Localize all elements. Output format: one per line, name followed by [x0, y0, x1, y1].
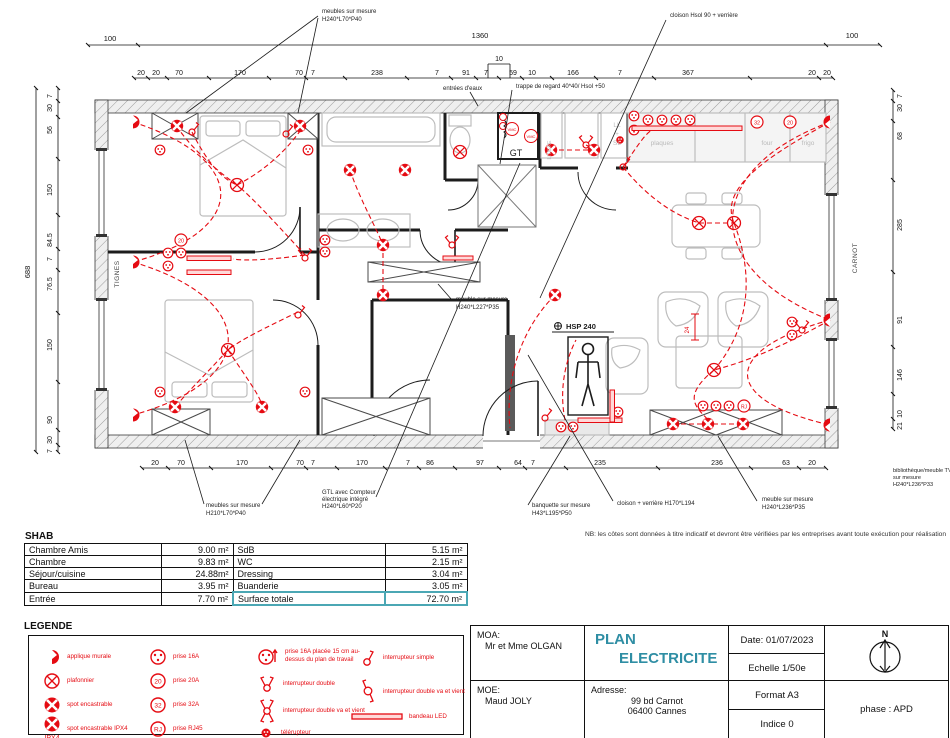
outlet-icon: [155, 387, 165, 397]
format-value: Format A3: [729, 681, 825, 710]
svg-text:four: four: [761, 140, 773, 147]
legend-item: bandeau LED: [351, 712, 447, 722]
outlet-icon: [303, 145, 313, 155]
svg-text:LITIERE: LITIERE: [547, 140, 553, 160]
outlet-icon: [698, 401, 708, 411]
svg-text:30: 30: [47, 436, 54, 444]
svg-text:150: 150: [47, 339, 54, 351]
led-strip-icon: [351, 712, 403, 722]
door-arcs: [255, 172, 616, 436]
spot-icon: [294, 120, 306, 132]
moa-cell: MOA: Mr et Mme OLGAN: [470, 625, 586, 682]
plafonnier-icon: [708, 364, 721, 377]
svg-text:238: 238: [371, 70, 383, 77]
switch-icon: [542, 409, 552, 422]
format-cell: Format A3: [728, 680, 826, 711]
switch-double-vv-icon: [257, 698, 277, 724]
outlet-20a-icon: 20: [149, 672, 167, 690]
svg-text:100: 100: [104, 34, 117, 43]
telerupteur-icon: [257, 726, 275, 738]
spot-icon: [377, 289, 389, 301]
applique-icon: [824, 314, 831, 327]
svg-text:7: 7: [311, 460, 315, 467]
date-cell: Date: 01/07/2023: [728, 625, 826, 655]
svg-text:10: 10: [495, 56, 503, 63]
outlet-rj45-icon: RJ: [738, 400, 750, 412]
legend-item: spot encastrable: [43, 696, 112, 714]
vmc-icon: VMC: [506, 123, 519, 136]
outlet-icon: [176, 248, 186, 258]
legend-box: applique murale plafonnier spot encastra…: [28, 635, 464, 735]
shab-table: Chambre Amis9.00 m² SdB5.15 m² Chambre9.…: [24, 543, 468, 606]
svg-text:trappe de regard 40*40/ Hsol +: trappe de regard 40*40/ Hsol +50: [516, 84, 606, 90]
svg-text:7: 7: [406, 460, 410, 467]
svg-text:91: 91: [897, 316, 904, 324]
switch-simple-icon: [359, 648, 377, 668]
svg-text:H210*L70*P40: H210*L70*P40: [206, 511, 246, 517]
gtl-label: GT: [510, 148, 523, 158]
north-compass: N: [825, 626, 946, 678]
svg-text:H43*L195*P50: H43*L195*P50: [532, 511, 572, 517]
spot-icon: [702, 418, 714, 430]
svg-text:7: 7: [47, 257, 54, 261]
svg-text:7: 7: [47, 94, 54, 98]
svg-text:VMC: VMC: [508, 127, 517, 132]
svg-text:20: 20: [152, 70, 160, 77]
spot-icon: [169, 401, 181, 413]
hsp-marker: HSP 240: [552, 322, 614, 332]
svg-text:20: 20: [808, 70, 816, 77]
outlet-icon: [685, 115, 695, 125]
spot-icon: [256, 401, 268, 413]
title-block: MOA: Mr et Mme OLGAN MOE: Maud JOLY PLAN…: [470, 625, 947, 735]
spot-icon: [43, 696, 61, 714]
outlet-icon: [155, 145, 165, 155]
svg-text:146: 146: [897, 369, 904, 381]
outlet-20A-icon: 20: [175, 234, 187, 246]
address-line2: 06400 Cannes: [585, 706, 729, 716]
svg-text:HSP 240: HSP 240: [566, 322, 596, 331]
svg-text:68: 68: [897, 132, 904, 140]
phase-value: phase : APD: [825, 681, 948, 738]
svg-text:bibliothèque/meuble TV: bibliothèque/meuble TV: [893, 468, 950, 474]
svg-text:H240*L70*P40: H240*L70*P40: [322, 17, 362, 23]
svg-text:150: 150: [47, 184, 54, 196]
svg-text:7: 7: [897, 94, 904, 98]
svg-text:70: 70: [296, 460, 304, 467]
vmc-icon: VMC: [525, 130, 538, 143]
applique-icon: [133, 409, 140, 422]
outlet-rj45-icon: RJ: [149, 720, 167, 738]
svg-text:H240*L236*P35: H240*L236*P35: [762, 505, 806, 511]
dimension-labels: 100 1360 100 20 20 70 170 70 7 238 7 91 …: [23, 31, 904, 467]
outlet-icon: [556, 422, 566, 432]
outlet-icon: [300, 387, 310, 397]
legend-item: applique murale: [43, 648, 111, 666]
indice-cell: Indice 0: [728, 709, 826, 738]
applique-icon: [133, 116, 140, 129]
svg-text:20: 20: [787, 121, 793, 127]
moe-label: MOE:: [477, 685, 585, 695]
switch-double-vv-icon: [359, 678, 377, 706]
svg-text:285: 285: [897, 219, 904, 231]
svg-text:N: N: [882, 629, 889, 639]
outlet-20A-icon: 20: [784, 116, 796, 128]
svg-text:7: 7: [531, 460, 535, 467]
table-row: Bureau3.95 m² Buanderie3.05 m²: [25, 580, 468, 593]
person-figure: [576, 344, 600, 407]
legend-item: plafonnier: [43, 672, 94, 690]
spot-icon: [399, 164, 411, 176]
svg-text:10: 10: [897, 410, 904, 418]
shab-title: SHAB: [25, 531, 468, 542]
plafonnier-icon: [231, 179, 244, 192]
spot-icon: [377, 239, 389, 251]
svg-text:7: 7: [311, 70, 315, 77]
table-row: Chambre Amis9.00 m² SdB5.15 m²: [25, 544, 468, 556]
svg-text:63: 63: [782, 460, 790, 467]
outlet-16a-icon: [149, 648, 167, 666]
outlet-icon: [320, 247, 330, 257]
svg-text:76.5: 76.5: [47, 277, 54, 291]
svg-text:21: 21: [897, 422, 904, 430]
svg-text:20: 20: [151, 460, 159, 467]
moe-value: Maud JOLY: [485, 696, 585, 706]
outlet-32A-icon: 32: [751, 116, 763, 128]
duct-icon: [500, 114, 507, 121]
legend-item: interrupteur simple: [359, 648, 469, 668]
svg-text:166: 166: [567, 70, 579, 77]
svg-text:20: 20: [137, 70, 145, 77]
scale-value: Echelle 1/50e: [729, 654, 825, 683]
street-right-label: CARNOT: [852, 243, 859, 273]
svg-text:banquette sur mesure: banquette sur mesure: [532, 503, 591, 509]
spot-icon: [737, 418, 749, 430]
legend-item: prise 16A placée 15 cm au-dessus du plan…: [257, 646, 371, 666]
table-row-total: Entrée7.70 m² Surface totale72.70 m²: [25, 592, 468, 605]
svg-text:10: 10: [528, 70, 536, 77]
outlet-icon: [671, 115, 681, 125]
svg-text:236: 236: [711, 460, 723, 467]
svg-text:RJ: RJ: [741, 405, 748, 411]
date-value: Date: 01/07/2023: [729, 626, 825, 654]
svg-text:sur mesure: sur mesure: [893, 475, 921, 481]
svg-text:H240*L60*P20: H240*L60*P20: [322, 504, 362, 510]
legend-item: télérupteur: [257, 726, 311, 738]
legend-item: IPX4 spot encastrable IPX4: [43, 716, 128, 738]
drawing-title-cell: PLAN ELECTRICITE: [584, 625, 730, 682]
plafonnier-icon: [728, 217, 741, 230]
svg-text:électrique intégré: électrique intégré: [322, 497, 369, 503]
svg-text:688: 688: [23, 266, 32, 279]
svg-text:84.5: 84.5: [47, 233, 54, 247]
legend-item: RJ prise RJ45: [149, 720, 203, 738]
svg-text:86: 86: [426, 460, 434, 467]
outlet-icon: [787, 330, 797, 340]
address-line1: 99 bd Carnot: [585, 696, 729, 706]
applique-icon: [824, 419, 831, 432]
svg-text:32: 32: [754, 121, 760, 127]
legend-item: 32 prise 32A: [149, 696, 199, 714]
svg-text:30: 30: [47, 104, 54, 112]
spot-icon: [344, 164, 356, 176]
svg-text:cloison + verrière H170*L194: cloison + verrière H170*L194: [617, 501, 695, 507]
svg-text:7: 7: [435, 70, 439, 77]
svg-text:20: 20: [178, 239, 184, 245]
drawing-title: PLAN ELECTRICITE: [595, 631, 729, 669]
svg-text:91: 91: [462, 70, 470, 77]
svg-text:70: 70: [295, 70, 303, 77]
legend-item: interrupteur double: [257, 674, 369, 694]
svg-text:59: 59: [509, 70, 517, 77]
north-cell: N: [824, 625, 949, 682]
svg-text:meuble sur mesure: meuble sur mesure: [456, 297, 508, 303]
svg-text:meubles sur mesure: meubles sur mesure: [206, 503, 261, 509]
switch-double-icon: [446, 236, 459, 249]
outlet-icon: [657, 115, 667, 125]
red-dim-24-label: 24: [685, 326, 691, 333]
svg-text:20: 20: [823, 70, 831, 77]
svg-text:SL: SL: [613, 140, 621, 147]
svg-text:entrées d'eaux: entrées d'eaux: [443, 86, 482, 92]
outlet-worktop-icon: [257, 646, 279, 666]
floor-plan-drawing: 100 1360 100 20 20 70 170 70 7 238 7 91 …: [0, 0, 950, 530]
svg-text:170: 170: [356, 460, 368, 467]
svg-text:20: 20: [154, 679, 162, 686]
outlet-icon: [629, 111, 639, 121]
electrical-plan-sheet: { "accent": {"red": "#e50b12", "teal": "…: [0, 0, 950, 738]
svg-text:7: 7: [484, 70, 488, 77]
table-row: Séjour/cuisine24.88m² Dressing3.04 m²: [25, 568, 468, 580]
svg-text:+: +: [615, 131, 619, 138]
spot-icon: [549, 289, 561, 301]
table-row: Chambre9.83 m² WC2.15 m²: [25, 556, 468, 568]
cloison-verriere-wall: [505, 335, 515, 431]
outlet-icon: [711, 401, 721, 411]
svg-text:70: 70: [177, 460, 185, 467]
street-left-label: TIGNES: [114, 260, 121, 287]
svg-text:70: 70: [175, 70, 183, 77]
svg-text:VMC: VMC: [527, 134, 536, 139]
svg-text:GTL avec Compteur: GTL avec Compteur: [322, 490, 376, 496]
outlet-icon: [163, 261, 173, 271]
outlet-icon: [163, 248, 173, 258]
outlet-icon: [320, 235, 330, 245]
spot-icon: [667, 418, 679, 430]
svg-text:20: 20: [808, 460, 816, 467]
legend-title: LEGENDE: [24, 621, 72, 632]
address-label: Adresse:: [591, 685, 729, 695]
svg-text:235: 235: [594, 460, 606, 467]
svg-text:cloison Hsol 90 + verrière: cloison Hsol 90 + verrière: [670, 13, 739, 19]
moa-label: MOA:: [477, 630, 585, 640]
svg-text:1360: 1360: [472, 31, 489, 40]
svg-text:7: 7: [47, 449, 54, 453]
applique-icon: [133, 256, 140, 269]
svg-text:100: 100: [846, 31, 859, 40]
applique-icon: [43, 648, 61, 666]
legend-item: prise 16A: [149, 648, 199, 666]
indice-value: Indice 0: [729, 710, 825, 738]
svg-text:H240*L236*P33: H240*L236*P33: [893, 482, 933, 488]
svg-text:meuble sur mesure: meuble sur mesure: [762, 497, 814, 503]
svg-text:90: 90: [47, 416, 54, 424]
svg-text:meubles sur mesure: meubles sur mesure: [322, 9, 377, 15]
address-cell: Adresse: 99 bd Carnot 06400 Cannes: [584, 680, 730, 738]
switch-double-icon: [257, 674, 277, 694]
outlet-icon: [724, 401, 734, 411]
spot-icon: [588, 144, 600, 156]
shab-section: SHAB Chambre Amis9.00 m² SdB5.15 m² Cham…: [24, 531, 468, 606]
outlet-32a-icon: 32: [149, 696, 167, 714]
svg-text:367: 367: [682, 70, 694, 77]
spot-ipx4-icon: IPX4: [43, 716, 61, 738]
svg-text:97: 97: [476, 460, 484, 467]
spot-icon: [171, 120, 183, 132]
outlet-icon: [643, 115, 653, 125]
svg-text:32: 32: [154, 703, 162, 710]
plafonnier-icon: [43, 672, 61, 690]
svg-text:plaques: plaques: [651, 140, 675, 147]
svg-text:64: 64: [514, 460, 522, 467]
svg-text:30: 30: [897, 104, 904, 112]
svg-text:7: 7: [618, 70, 622, 77]
svg-text:170: 170: [236, 460, 248, 467]
legend-item: interrupteur double va et vient: [359, 678, 469, 706]
svg-text:RJ: RJ: [154, 727, 162, 734]
moa-value: Mr et Mme OLGAN: [485, 641, 585, 651]
svg-text:H240*L227*P35: H240*L227*P35: [456, 305, 500, 311]
svg-text:56: 56: [47, 126, 54, 134]
phase-cell: phase : APD: [824, 680, 949, 738]
nb-note: NB: les côtes sont données à titre indic…: [528, 531, 946, 538]
legend-item: 20 prise 20A: [149, 672, 199, 690]
svg-text:frigo: frigo: [802, 140, 815, 147]
moe-cell: MOE: Maud JOLY: [470, 680, 586, 738]
